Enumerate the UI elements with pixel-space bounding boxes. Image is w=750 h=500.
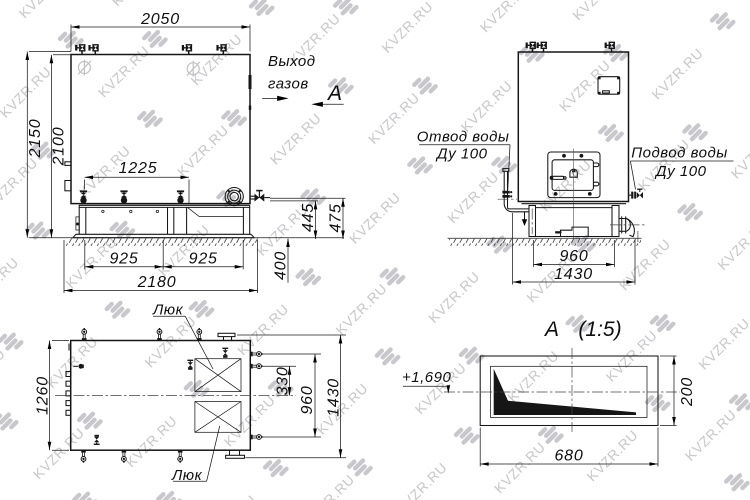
- svg-text:Отвод воды: Отвод воды: [417, 129, 510, 146]
- svg-text:445: 445: [300, 203, 317, 232]
- svg-text:2150: 2150: [27, 119, 44, 159]
- svg-text:680: 680: [554, 448, 583, 465]
- svg-text:(1:5): (1:5): [578, 318, 621, 341]
- svg-text:Ду 100: Ду 100: [654, 163, 707, 180]
- svg-text:960: 960: [559, 248, 588, 265]
- svg-text:Ду 100: Ду 100: [435, 146, 488, 163]
- svg-text:200: 200: [679, 377, 696, 407]
- svg-text:1430: 1430: [326, 378, 343, 417]
- svg-text:2050: 2050: [140, 11, 180, 28]
- svg-text:Подвод воды: Подвод воды: [631, 144, 727, 161]
- svg-text:1225: 1225: [119, 160, 158, 177]
- svg-text:A: A: [543, 318, 559, 341]
- svg-text:925: 925: [189, 251, 218, 268]
- svg-text:газов: газов: [268, 76, 309, 93]
- svg-text:475: 475: [328, 203, 345, 232]
- svg-text:960: 960: [299, 385, 316, 414]
- svg-text:330: 330: [275, 366, 292, 395]
- svg-text:A: A: [326, 82, 342, 105]
- svg-text:925: 925: [109, 251, 138, 268]
- svg-text:1430: 1430: [554, 266, 593, 283]
- svg-text:Выход: Выход: [268, 53, 316, 70]
- svg-text:400: 400: [273, 251, 290, 280]
- svg-text:2180: 2180: [137, 274, 177, 291]
- svg-text:2100: 2100: [51, 127, 68, 167]
- svg-text:1260: 1260: [35, 376, 52, 415]
- svg-text:+1,690: +1,690: [402, 369, 451, 386]
